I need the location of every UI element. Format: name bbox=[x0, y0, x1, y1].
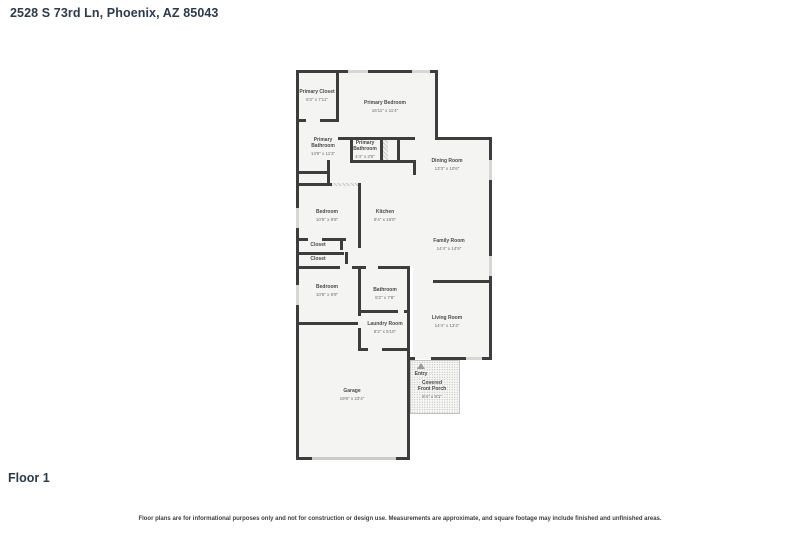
room-name: Dining Room bbox=[431, 159, 462, 165]
window-segment bbox=[466, 357, 482, 360]
room-dims: 16'11" x 11'4" bbox=[364, 108, 406, 113]
wall-segment bbox=[358, 238, 361, 248]
wall-segment bbox=[296, 70, 299, 460]
room-dims: 14'9" x 11'3" bbox=[309, 151, 337, 156]
room-dims: 4'4" x 3'5" bbox=[351, 154, 379, 159]
room-dims: 10'5" x 9'8" bbox=[316, 217, 338, 222]
floor-plan: Primary Closet 6'3" x 7'11" Primary Bedr… bbox=[296, 70, 496, 465]
entry-direction-icon bbox=[417, 363, 425, 369]
room-dims: 8'2" x 5'10" bbox=[367, 329, 402, 334]
wall-segment bbox=[358, 348, 368, 351]
room-label-primary-bathroom-small: Primary Bathroom 4'4" x 3'5" bbox=[351, 141, 379, 159]
room-name: Laundry Room bbox=[367, 322, 402, 328]
room-name: Bathroom bbox=[373, 288, 397, 294]
room-name: Covered Front Porch bbox=[416, 381, 448, 393]
wall-segment bbox=[296, 266, 340, 269]
room-dims: 13'3" x 10'6" bbox=[431, 166, 462, 171]
wall-segment bbox=[397, 139, 400, 160]
room-name: Closet bbox=[310, 243, 325, 249]
room-label-kitchen: Kitchen 9'4" x 19'0" bbox=[374, 210, 396, 222]
room-name: Bedroom bbox=[316, 285, 338, 291]
garage-door-segment bbox=[312, 457, 396, 460]
room-label-primary-bedroom: Primary Bedroom 16'11" x 11'4" bbox=[364, 101, 406, 113]
room-label-primary-closet: Primary Closet 6'3" x 7'11" bbox=[299, 90, 334, 102]
wall-segment bbox=[482, 357, 492, 360]
wall-segment bbox=[435, 70, 438, 140]
room-dims: 14'4" x 14'9" bbox=[433, 246, 464, 251]
room-dims: 14'4" x 13'4" bbox=[432, 323, 462, 328]
wall-segment bbox=[407, 266, 410, 460]
room-name: Bedroom bbox=[316, 210, 338, 216]
wall-segment bbox=[327, 160, 330, 183]
wall-segment bbox=[378, 266, 410, 269]
room-label-family-room: Family Room 14'4" x 14'9" bbox=[433, 239, 464, 251]
room-label-bathroom: Bathroom 8'2" x 7'8" bbox=[373, 288, 397, 300]
room-label-garage: Garage 19'8" x 23'4" bbox=[340, 389, 365, 401]
room-label-closet-lower: Closet bbox=[310, 257, 325, 263]
room-dims: 9'4" x 19'0" bbox=[374, 217, 396, 222]
wall-segment bbox=[296, 322, 358, 325]
room-label-entry: Entry bbox=[415, 372, 428, 378]
wall-segment bbox=[431, 357, 466, 360]
wall-segment bbox=[340, 238, 343, 250]
room-label-living-room: Living Room 14'4" x 13'4" bbox=[432, 316, 462, 328]
room-dims: 6'3" x 7'11" bbox=[299, 97, 334, 102]
room-name: Closet bbox=[310, 257, 325, 263]
wall-segment bbox=[336, 70, 339, 122]
window-segment bbox=[489, 256, 492, 276]
room-name: Family Room bbox=[433, 239, 464, 245]
wall-segment bbox=[358, 183, 361, 238]
room-name: Garage bbox=[340, 389, 365, 395]
room-name: Primary Bathroom bbox=[351, 141, 379, 153]
disclaimer-text: Floor plans are for informational purpos… bbox=[0, 516, 800, 522]
room-label-closet-upper: Closet bbox=[310, 243, 325, 249]
room-name: Living Room bbox=[432, 316, 462, 322]
window-segment bbox=[296, 285, 299, 305]
room-name: Primary Closet bbox=[299, 90, 334, 96]
wall-segment bbox=[296, 119, 306, 122]
room-name: Entry bbox=[415, 372, 428, 378]
wall-segment bbox=[296, 252, 344, 255]
wall-segment bbox=[345, 252, 348, 264]
room-name: Primary Bathroom bbox=[309, 138, 337, 150]
page-title: 2528 S 73rd Ln, Phoenix, AZ 85043 bbox=[10, 6, 218, 20]
room-label-primary-bathroom: Primary Bathroom 14'9" x 11'3" bbox=[309, 138, 337, 156]
window-segment bbox=[489, 160, 492, 180]
wall-segment bbox=[410, 357, 415, 360]
room-dims: 8'2" x 7'8" bbox=[373, 295, 397, 300]
room-name: Kitchen bbox=[374, 210, 396, 216]
wall-segment bbox=[296, 238, 308, 241]
wall-segment bbox=[358, 266, 361, 316]
room-dims: 10'5" x 9'9" bbox=[316, 292, 338, 297]
wall-segment bbox=[320, 119, 339, 122]
room-label-dining-room: Dining Room 13'3" x 10'6" bbox=[431, 159, 462, 171]
room-dims: 19'8" x 23'4" bbox=[340, 396, 365, 401]
wall-segment bbox=[358, 310, 398, 313]
room-name: Primary Bedroom bbox=[364, 101, 406, 107]
wall-segment bbox=[296, 171, 327, 174]
wall-segment bbox=[382, 348, 410, 351]
wall-segment bbox=[358, 328, 361, 348]
wall-segment bbox=[350, 160, 416, 163]
wall-segment bbox=[296, 183, 332, 186]
window-segment bbox=[348, 70, 368, 73]
window-segment bbox=[412, 70, 430, 73]
wall-segment bbox=[435, 137, 492, 140]
room-dims: 8'4" x 9'1" bbox=[416, 394, 448, 399]
door-hatch bbox=[383, 140, 388, 160]
room-label-laundry-room: Laundry Room 8'2" x 5'10" bbox=[367, 322, 402, 334]
door-hatch bbox=[332, 183, 358, 186]
room-label-covered-front-porch: Covered Front Porch 8'4" x 9'1" bbox=[416, 381, 448, 399]
window-segment bbox=[296, 208, 299, 228]
room-label-bedroom-lower: Bedroom 10'5" x 9'9" bbox=[316, 285, 338, 297]
room-label-bedroom-mid: Bedroom 10'5" x 9'8" bbox=[316, 210, 338, 222]
wall-segment bbox=[433, 280, 492, 283]
floor-number-label: Floor 1 bbox=[8, 471, 50, 485]
